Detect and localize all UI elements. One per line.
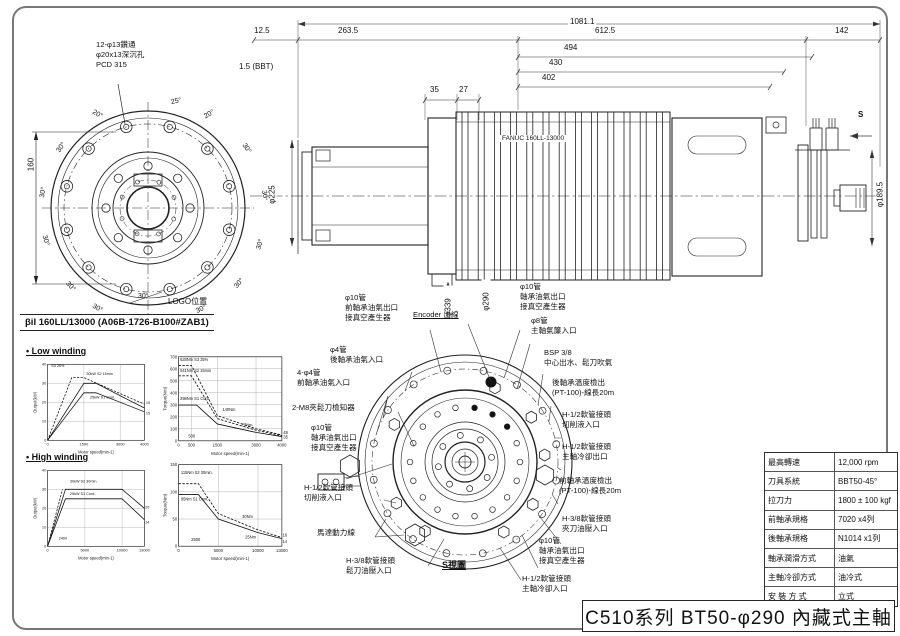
spec-value: BBT50-45° — [835, 472, 897, 490]
svg-text:10: 10 — [42, 525, 47, 530]
svg-text:1500: 1500 — [213, 442, 223, 447]
svg-text:13000: 13000 — [139, 547, 151, 552]
svg-text:10: 10 — [42, 419, 47, 424]
svg-text:10000: 10000 — [252, 548, 264, 553]
callout-motor-power-line: 馬達動力線 — [317, 528, 355, 538]
svg-text:0: 0 — [177, 442, 180, 447]
svg-text:100: 100 — [170, 426, 178, 431]
spec-value: 油冷式 — [835, 568, 897, 586]
front-view-hole-callout: 12-φ13鑽通 φ20x13深沉孔 PCD 315 — [96, 40, 144, 70]
svg-text:3000: 3000 — [251, 442, 261, 447]
chart-low-winding-torque: 0100200300400500600700050015003000400062… — [163, 352, 291, 457]
svg-text:30Nm: 30Nm — [242, 514, 253, 519]
svg-text:140Nm: 140Nm — [222, 407, 236, 412]
svg-text:Torque(Nm): Torque(Nm) — [163, 493, 168, 517]
svg-text:628Nm S3 25%: 628Nm S3 25% — [180, 357, 208, 362]
svg-text:30kW S2 15min: 30kW S2 15min — [86, 372, 112, 376]
motor-spec-header: βiI 160LL/13000 (A06B-1726-B100#ZAB1) — [20, 314, 214, 331]
svg-text:0: 0 — [46, 547, 49, 552]
callout-spindle-cooling-inlet: H-1/2軟管接頭 主軸冷卻入口 — [522, 574, 571, 594]
svg-text:30: 30 — [42, 381, 47, 386]
svg-text:30: 30 — [42, 487, 47, 492]
spec-row: 軸承潤滑方式油氣 — [765, 549, 897, 568]
dim-35: 35 — [428, 85, 441, 94]
svg-text:3000: 3000 — [116, 441, 126, 446]
callout-clamp-unclamp-sensor: 2-M8夾鬆刀檢知器 — [292, 403, 355, 413]
svg-text:2400: 2400 — [59, 537, 67, 541]
dim-494: 494 — [562, 43, 579, 52]
callout-bearing-oil-air-outlet-bottom-right: φ10管 軸承油氣出口 接真空產生器 — [539, 536, 585, 566]
spec-label: 拉刀力 — [765, 491, 835, 509]
dim-402: 402 — [540, 73, 557, 82]
svg-text:150: 150 — [170, 462, 178, 467]
svg-text:30kW S2 30min.: 30kW S2 30min. — [70, 480, 98, 484]
svg-text:600: 600 — [170, 366, 178, 371]
dim-12-5: 12.5 — [252, 26, 272, 35]
callout-front-bearing-temp-sensor: 前軸承溫度檢出 (PT-100)-線長20m — [559, 476, 621, 496]
svg-text:50: 50 — [173, 516, 178, 521]
svg-text:Motor speed(min-1): Motor speed(min-1) — [78, 449, 114, 454]
low-winding-label: • Low winding — [26, 346, 86, 356]
svg-text:Motor speed(min-1): Motor speed(min-1) — [211, 556, 250, 561]
svg-text:2500: 2500 — [191, 537, 201, 542]
front-view-drawing — [28, 84, 273, 334]
svg-text:S3 25%: S3 25% — [51, 364, 65, 368]
dim-bbt-gauge: 1.5 (BBT) — [237, 62, 275, 71]
specification-table: 最高轉速12,000 rpm刀具系統BBT50-45°拉刀力1800 ± 100… — [764, 452, 898, 607]
svg-text:14: 14 — [145, 521, 149, 525]
angle-label: 30° — [138, 293, 149, 300]
chart-high-winding-torque: 050100150050001000013000115Nm S2 30min.9… — [163, 460, 291, 562]
spec-value: N1014 x1列 — [835, 530, 897, 548]
callout-coolant-inlet-right: H-1/2軟管接頭 切削液入口 — [562, 410, 611, 430]
title-block: C510系列 BT50-φ290 內藏式主軸 — [582, 600, 895, 632]
callout-front-bearing-oil-air-inlet: 4-φ4管 前軸承油氣入口 — [297, 368, 350, 388]
svg-text:541Nm S2 15min: 541Nm S2 15min — [180, 368, 212, 373]
spec-label: 刀具系統 — [765, 472, 835, 490]
callout-rear-bearing-temp-sensor: 後軸承溫度檢出 (PT-100)-線長20m — [552, 378, 614, 398]
s-view-fittings — [340, 367, 559, 557]
dim-263-5: 263.5 — [336, 26, 360, 35]
callout-center-coolant-air-blow: BSP 3/8 中心出水、鬆刀吹氣 — [544, 348, 612, 368]
spec-label: 主軸冷卻方式 — [765, 568, 835, 586]
callout-front-bearing-oil-air-outlet: φ10管 前軸承油氣出口 接真空產生器 — [345, 293, 398, 323]
svg-text:500: 500 — [188, 442, 196, 447]
svg-text:15: 15 — [146, 412, 150, 416]
svg-text:13000: 13000 — [276, 548, 288, 553]
callout-spindle-cooling-outlet: H-1/2軟管接頭 主軸冷卻出口 — [562, 442, 611, 462]
callout-encoder-wire: Encoder 出線 — [413, 310, 459, 320]
spec-row: 主軸冷卻方式油冷式 — [765, 568, 897, 587]
drawing-sheet: 12-φ13鑽通 φ20x13深沉孔 PCD 315 160 LOGO位置 25… — [0, 0, 900, 636]
svg-text:10000: 10000 — [117, 547, 129, 552]
side-view-drawing — [248, 8, 888, 314]
callout-coolant-inlet-left: H-1/2軟管接頭 切削液入口 — [304, 483, 353, 503]
svg-text:115Nm S2 30min.: 115Nm S2 30min. — [181, 470, 213, 475]
svg-text:Torque(Nm): Torque(Nm) — [163, 386, 168, 411]
svg-text:200: 200 — [170, 414, 178, 419]
svg-text:20: 20 — [145, 505, 149, 509]
svg-text:400: 400 — [170, 390, 178, 395]
svg-text:40: 40 — [42, 362, 47, 367]
svg-text:40: 40 — [42, 468, 47, 473]
svg-text:298Nm S1 Cont.: 298Nm S1 Cont. — [180, 396, 210, 401]
spec-label: 軸承潤滑方式 — [765, 549, 835, 567]
svg-text:25kW S1 Cont.: 25kW S1 Cont. — [70, 492, 95, 496]
svg-text:77Nm: 77Nm — [242, 422, 253, 427]
s-view-title: S視圖 — [442, 558, 466, 571]
spec-value: 油氣 — [835, 549, 897, 567]
callout-unclamp-hydraulic-inlet: H-3/8軟管接頭 鬆刀油壓入口 — [346, 556, 395, 576]
view-s-mark: S — [856, 110, 865, 119]
svg-text:20: 20 — [42, 506, 47, 511]
dim-27: 27 — [457, 85, 470, 94]
callout-clamp-hydraulic-inlet: H-3/8軟管接頭 夾刀油壓入口 — [562, 514, 611, 534]
spec-label: 後軸承規格 — [765, 530, 835, 548]
svg-text:0: 0 — [177, 548, 180, 553]
spec-row: 後軸承規格N1014 x1列 — [765, 530, 897, 549]
callout-bearing-oil-air-outlet-left: φ10管 軸承油氣出口 接真空產生器 — [311, 423, 357, 453]
spec-value: 12,000 rpm — [835, 453, 897, 471]
callout-air-curtain-inlet: φ8管 主軸氣簾入口 — [531, 316, 577, 336]
dimension-lines — [252, 20, 882, 306]
svg-text:4000: 4000 — [140, 441, 150, 446]
spec-row: 最高轉速12,000 rpm — [765, 453, 897, 472]
svg-text:1500: 1500 — [80, 441, 90, 446]
spec-value: 7020 x4列 — [835, 511, 897, 529]
svg-text:0: 0 — [46, 441, 49, 446]
chart-low-winding-output: 0102030400150030004000S3 25%30kW S2 15mi… — [33, 360, 153, 455]
svg-text:100: 100 — [170, 489, 178, 494]
svg-text:25Nm: 25Nm — [245, 535, 256, 540]
spec-value: 1800 ± 100 kgf — [835, 491, 897, 509]
svg-text:Motor speed(min-1): Motor speed(min-1) — [78, 555, 114, 560]
svg-text:500: 500 — [188, 433, 195, 438]
svg-text:20: 20 — [42, 400, 47, 405]
chart-high-winding-output: 01020304005000100001300030kW S2 30min.25… — [33, 466, 153, 561]
dim-430: 430 — [547, 58, 564, 67]
svg-text:5000: 5000 — [214, 548, 224, 553]
svg-text:19: 19 — [146, 401, 150, 405]
svg-text:5000: 5000 — [80, 547, 90, 552]
dim-dia-189-5: φ189.5 — [876, 167, 885, 223]
dim-dia-225: φ225 — [268, 173, 277, 217]
spec-label: 最高轉速 — [765, 453, 835, 471]
dim-612-5: 612.5 — [593, 26, 617, 35]
svg-text:25kW S1 Cont.: 25kW S1 Cont. — [90, 396, 115, 400]
svg-text:Output(kW): Output(kW) — [32, 391, 37, 413]
dim-160: 160 — [27, 150, 36, 180]
callout-bearing-oil-air-outlet-top-right: φ10管 軸承油氣出口 接真空產生器 — [520, 282, 566, 312]
spec-row: 刀具系統BBT50-45° — [765, 472, 897, 491]
spec-row: 前軸承規格7020 x4列 — [765, 511, 897, 530]
svg-text:4000: 4000 — [277, 442, 287, 447]
callout-rear-bearing-oil-air-inlet: φ4管 後軸承油氣入口 — [330, 345, 383, 365]
dim-142: 142 — [833, 26, 850, 35]
svg-text:300: 300 — [170, 402, 178, 407]
svg-text:700: 700 — [170, 354, 178, 359]
svg-text:500: 500 — [170, 378, 178, 383]
svg-text:Output(kW): Output(kW) — [32, 497, 37, 519]
spec-label: 前軸承規格 — [765, 511, 835, 529]
spec-row: 拉刀力1800 ± 100 kgf — [765, 491, 897, 510]
dim-overall: 1081.1 — [568, 17, 596, 26]
motor-model-text: FANUC 160LL-13000 — [500, 135, 566, 142]
svg-text:Motor speed(min-1): Motor speed(min-1) — [211, 451, 250, 456]
svg-text:95Nm S1 Cont.: 95Nm S1 Cont. — [181, 497, 208, 502]
